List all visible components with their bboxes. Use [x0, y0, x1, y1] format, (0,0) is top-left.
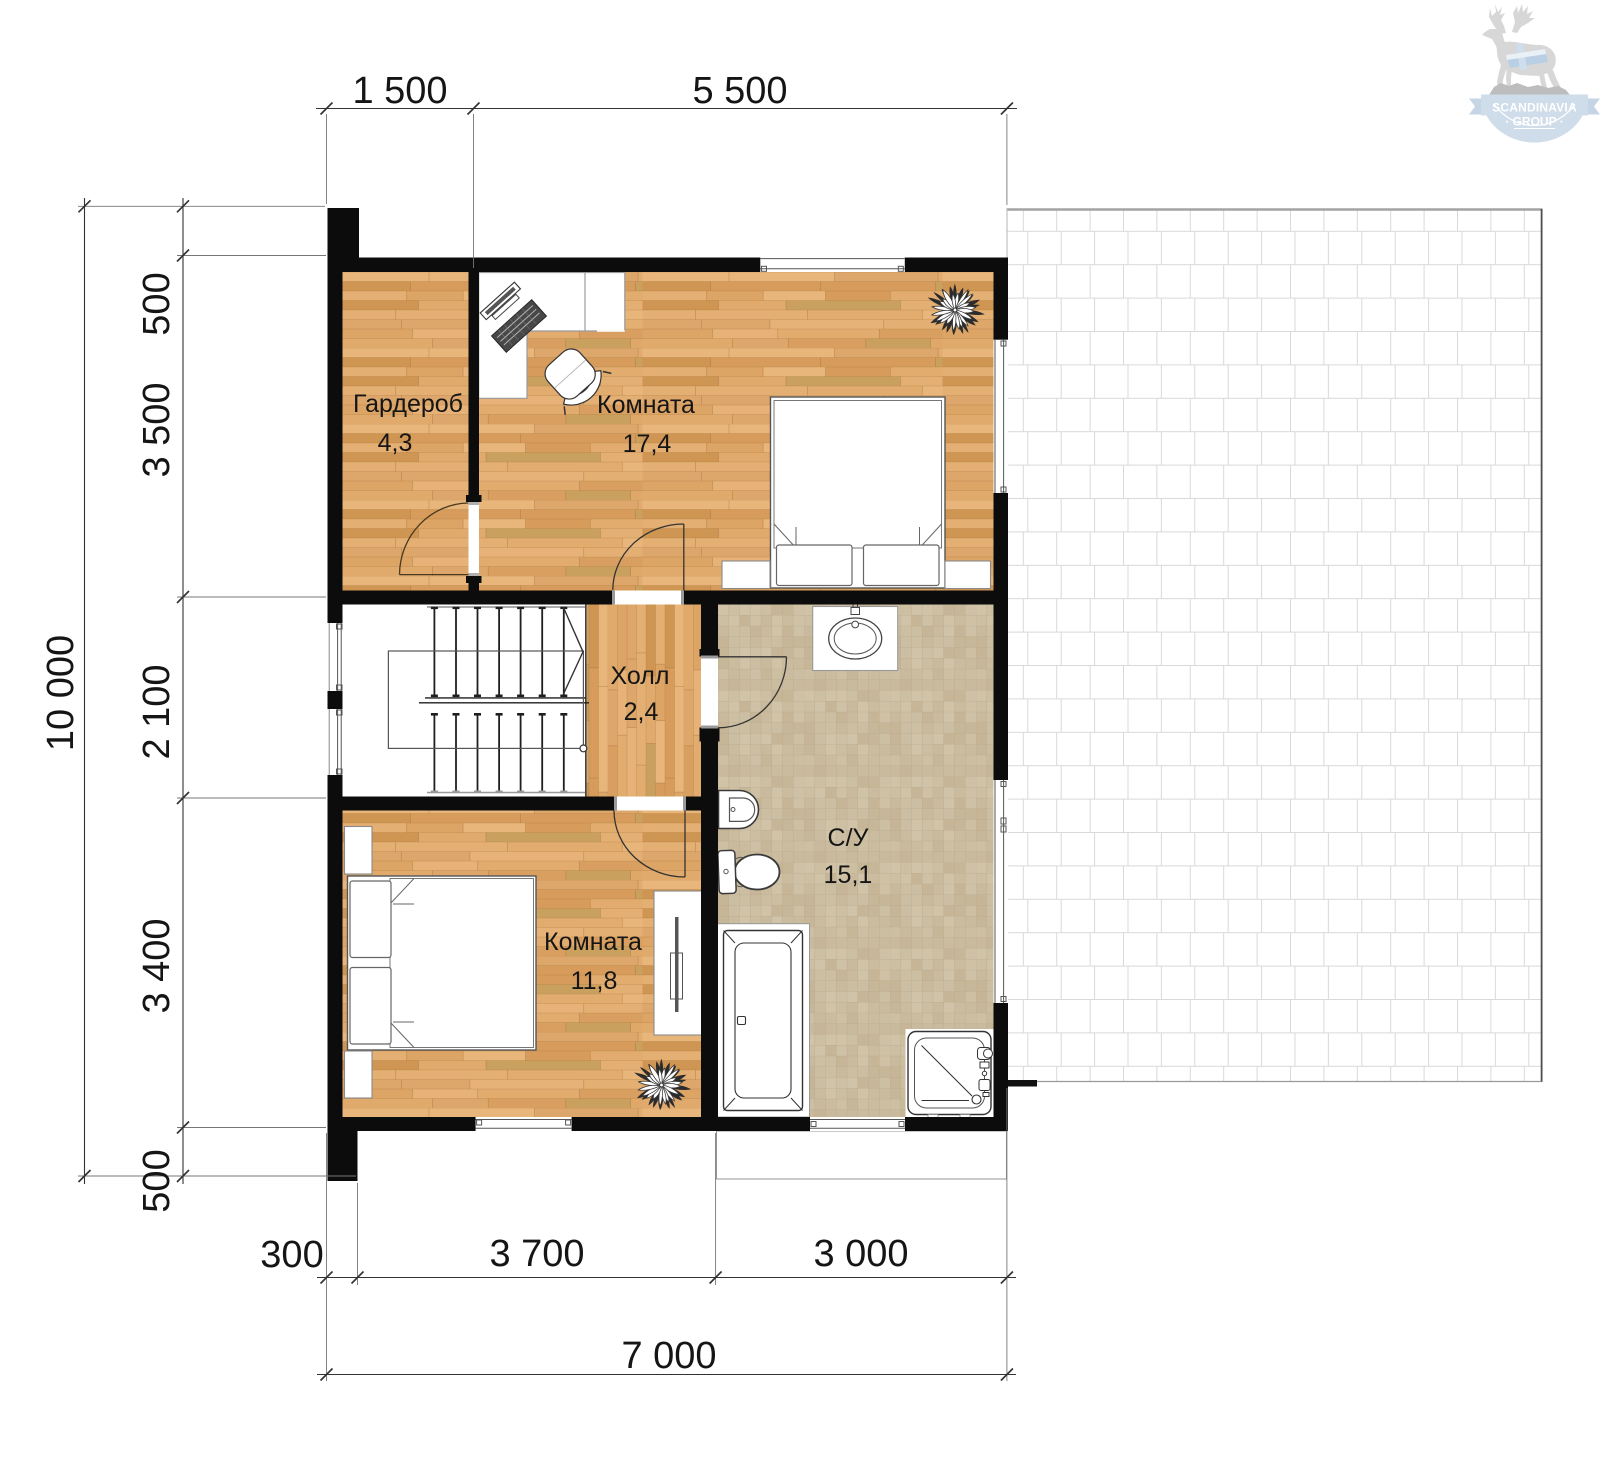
- svg-text:17,4: 17,4: [623, 430, 672, 458]
- svg-text:2,4: 2,4: [624, 698, 659, 726]
- svg-text:3 500: 3 500: [136, 382, 178, 477]
- svg-text:7 000: 7 000: [621, 1335, 716, 1377]
- svg-text:11,8: 11,8: [571, 967, 618, 995]
- svg-text:SCANDINAVIA: SCANDINAVIA: [1492, 101, 1577, 115]
- svg-text:15,1: 15,1: [824, 861, 873, 889]
- svg-text:300: 300: [260, 1234, 323, 1276]
- svg-text:5 500: 5 500: [692, 70, 787, 112]
- svg-text:4,3: 4,3: [378, 429, 413, 457]
- svg-text:Комната: Комната: [544, 928, 642, 956]
- svg-text:500: 500: [136, 272, 178, 335]
- svg-text:С/У: С/У: [828, 824, 869, 852]
- svg-text:1 500: 1 500: [352, 70, 447, 112]
- svg-text:10 000: 10 000: [40, 635, 82, 751]
- svg-text:500: 500: [136, 1149, 178, 1212]
- svg-text:Комната: Комната: [597, 391, 695, 419]
- svg-text:3 400: 3 400: [136, 918, 178, 1013]
- svg-text:3 000: 3 000: [813, 1233, 908, 1275]
- svg-text:3 700: 3 700: [489, 1233, 584, 1275]
- svg-text:Гардероб: Гардероб: [353, 390, 463, 418]
- svg-text:Холл: Холл: [611, 662, 670, 690]
- svg-text:2 100: 2 100: [136, 664, 178, 759]
